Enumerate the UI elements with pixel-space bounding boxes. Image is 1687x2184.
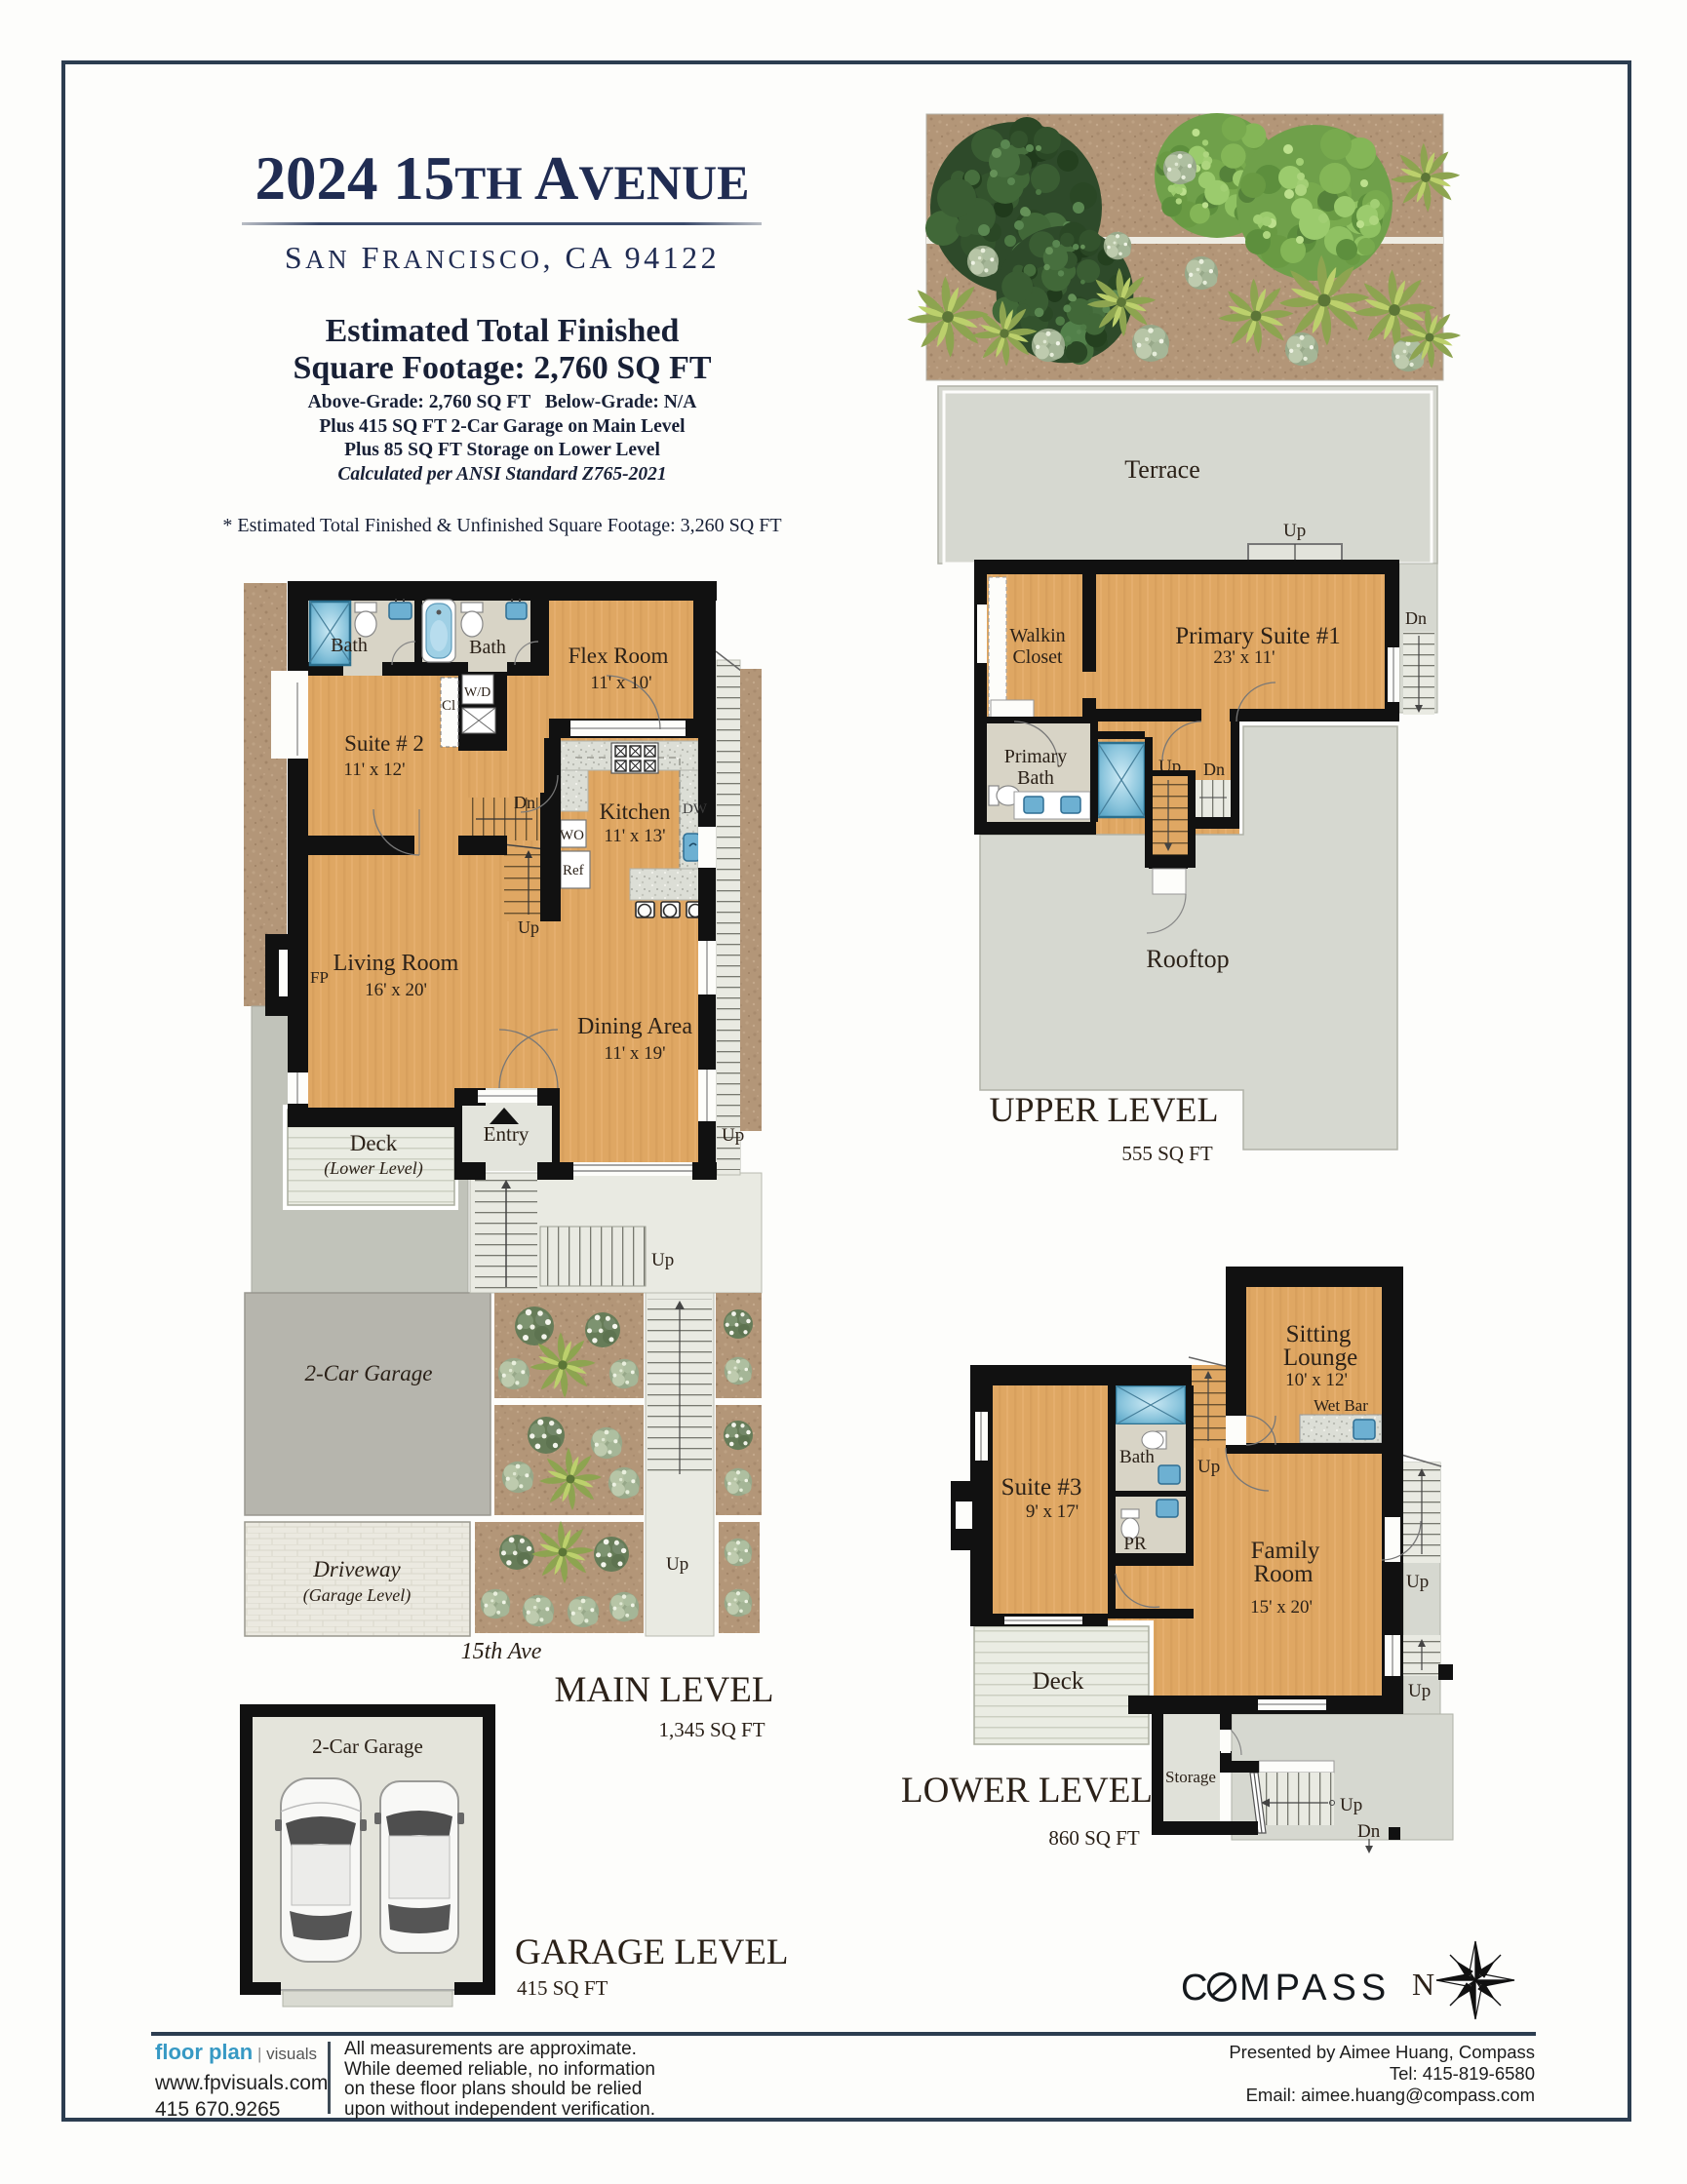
svg-text:Terrace: Terrace	[1124, 455, 1200, 484]
svg-text:Primary: Primary	[1004, 746, 1067, 767]
svg-text:11' x 12': 11' x 12'	[343, 760, 405, 780]
svg-text:Bath: Bath	[1017, 767, 1054, 789]
svg-text:15th Ave: 15th Ave	[461, 1639, 542, 1664]
svg-text:GARAGE LEVEL: GARAGE LEVEL	[515, 1932, 789, 1972]
svg-text:W/D: W/D	[464, 685, 490, 700]
svg-text:Up: Up	[666, 1554, 688, 1575]
svg-text:Sitting: Sitting	[1286, 1321, 1352, 1347]
svg-text:Suite # 2: Suite # 2	[344, 731, 424, 756]
svg-text:Living Room: Living Room	[333, 951, 459, 976]
svg-text:Dn: Dn	[1203, 760, 1225, 779]
svg-text:Deck: Deck	[350, 1131, 398, 1155]
svg-text:Storage: Storage	[1165, 1768, 1216, 1786]
svg-text:2-Car Garage: 2-Car Garage	[312, 1735, 423, 1758]
svg-text:Kitchen: Kitchen	[600, 799, 671, 824]
svg-text:Up: Up	[1197, 1457, 1220, 1477]
svg-text:Bath: Bath	[469, 637, 506, 658]
svg-text:PR: PR	[1123, 1534, 1147, 1554]
svg-text:MPASS: MPASS	[1239, 1968, 1391, 2008]
svg-text:Family: Family	[1251, 1538, 1320, 1564]
svg-text:Lounge: Lounge	[1283, 1345, 1357, 1371]
svg-text:Bath: Bath	[1119, 1447, 1155, 1467]
svg-text:Deck: Deck	[1033, 1668, 1084, 1695]
svg-text:11' x 13': 11' x 13'	[604, 826, 665, 846]
svg-text:Room: Room	[1253, 1561, 1314, 1587]
svg-text:23' x 11': 23' x 11'	[1213, 647, 1275, 668]
svg-text:415 SQ FT: 415 SQ FT	[517, 1976, 608, 2000]
svg-text:Suite #3: Suite #3	[1001, 1474, 1082, 1501]
svg-text:Up: Up	[1408, 1681, 1431, 1701]
svg-text:Primary Suite #1: Primary Suite #1	[1175, 623, 1340, 649]
svg-text:Dn: Dn	[514, 793, 535, 812]
svg-text:15' x 20': 15' x 20'	[1250, 1597, 1313, 1618]
svg-text:16' x 20': 16' x 20'	[365, 980, 427, 1000]
svg-text:Wet Bar: Wet Bar	[1314, 1396, 1368, 1415]
svg-text:WO: WO	[560, 828, 584, 843]
svg-text:Bath: Bath	[331, 635, 368, 656]
svg-text:(Lower Level): (Lower Level)	[324, 1158, 422, 1179]
svg-text:1,345 SQ FT: 1,345 SQ FT	[658, 1718, 765, 1741]
svg-text:860 SQ FT: 860 SQ FT	[1048, 1826, 1140, 1850]
svg-text:Up: Up	[1340, 1795, 1362, 1815]
svg-text:UPPER LEVEL: UPPER LEVEL	[989, 1090, 1218, 1129]
svg-text:2-Car Garage: 2-Car Garage	[305, 1361, 433, 1385]
svg-text:Up: Up	[518, 917, 539, 937]
svg-text:Driveway: Driveway	[312, 1557, 401, 1581]
svg-text:555 SQ FT: 555 SQ FT	[1121, 1142, 1213, 1165]
svg-text:LOWER LEVEL: LOWER LEVEL	[901, 1771, 1153, 1811]
svg-text:Walkin: Walkin	[1009, 625, 1065, 646]
svg-text:Up: Up	[1283, 521, 1306, 541]
svg-text:Dining Area: Dining Area	[577, 1014, 692, 1039]
svg-text:Entry: Entry	[484, 1122, 530, 1146]
svg-text:N: N	[1412, 1967, 1434, 2002]
svg-text:FP: FP	[310, 968, 329, 987]
svg-text:Dn: Dn	[1405, 608, 1427, 628]
svg-text:Cl: Cl	[442, 698, 455, 714]
svg-text:Up: Up	[651, 1250, 674, 1270]
svg-text:Flex Room: Flex Room	[569, 643, 669, 668]
svg-text:11' x 19': 11' x 19'	[604, 1043, 665, 1064]
svg-text:MAIN LEVEL: MAIN LEVEL	[554, 1670, 773, 1710]
svg-text:DW: DW	[683, 801, 708, 817]
svg-text:10' x 12': 10' x 12'	[1285, 1370, 1348, 1390]
svg-text:Rooftop: Rooftop	[1146, 945, 1229, 973]
svg-text:Closet: Closet	[1012, 646, 1063, 668]
svg-text:11' x 10': 11' x 10'	[590, 673, 651, 693]
svg-text:(Garage Level): (Garage Level)	[303, 1585, 411, 1606]
svg-text:9' x 17': 9' x 17'	[1026, 1501, 1079, 1522]
svg-text:Up: Up	[1406, 1572, 1429, 1592]
svg-text:Dn: Dn	[1357, 1821, 1381, 1842]
svg-text:Ref: Ref	[563, 863, 584, 878]
